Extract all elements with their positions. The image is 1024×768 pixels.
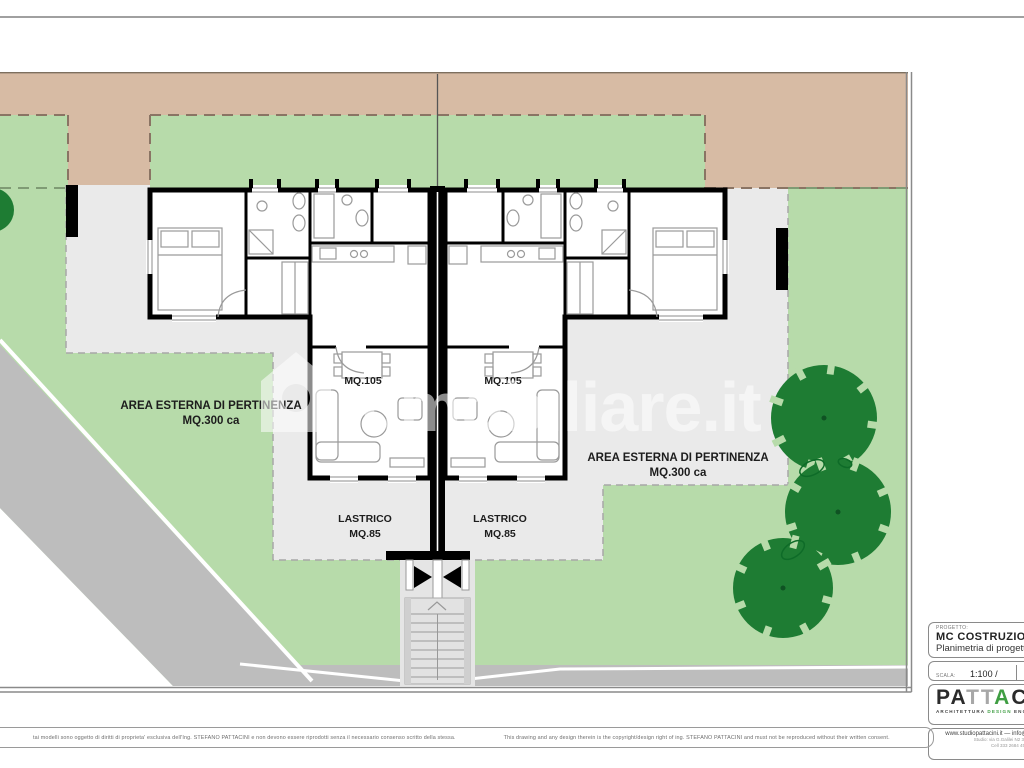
- titleblock-logo-box: PATTACINI ARCHITETTURA DESIGN ENGINEERIN…: [928, 684, 1024, 725]
- area-left-size: MQ.300 ca: [183, 415, 240, 427]
- scale-value: 1:100 /: [970, 669, 998, 679]
- disclaimer-strip: tai modelli sono oggetto di diritti di p…: [0, 727, 934, 748]
- titleblock-contact-box: www.studiopattacini.it — info@studiopatt…: [928, 728, 1024, 760]
- studio-logo: PATTACINI: [936, 687, 1024, 709]
- staircase: [405, 598, 470, 684]
- studio-tagline: ARCHITETTURA DESIGN ENGINEERING: [936, 709, 1024, 714]
- lastrico-left-label: LASTRICO: [338, 513, 392, 525]
- project-subtitle: Planimetria di progetto: [936, 643, 1024, 654]
- boundary-wall-right: [776, 228, 788, 290]
- lastrico-right-label: LASTRICO: [473, 513, 527, 525]
- area-right-size: MQ.300 ca: [650, 467, 707, 479]
- area-right-label: AREA ESTERNA DI PERTINENZA: [587, 452, 768, 464]
- lastrico-right-size: MQ.85: [484, 528, 516, 540]
- site-plan-drawing: AREA ESTERNA DI PERTINENZA MQ.300 ca ARE…: [0, 0, 1024, 768]
- scale-label: SCALA:: [936, 673, 956, 679]
- project-name: MC COSTRUZIONI: [936, 631, 1024, 643]
- watermark-text: mmobiliare.it: [338, 368, 761, 446]
- studio-phone: Cell 333 2684 45: [936, 743, 1024, 749]
- titleblock-project-box: PROGETTO: MC COSTRUZIONI Planimetria di …: [928, 622, 1024, 658]
- disclaimer-english: This drawing and any design therein is t…: [504, 735, 890, 741]
- lastrico-left-size: MQ.85: [349, 528, 381, 540]
- titleblock-scale-box: SCALA: 1:100 / DATA:: [928, 661, 1024, 681]
- boundary-wall-left: [66, 185, 78, 237]
- disclaimer-italian: tai modelli sono oggetto di diritti di p…: [33, 735, 456, 741]
